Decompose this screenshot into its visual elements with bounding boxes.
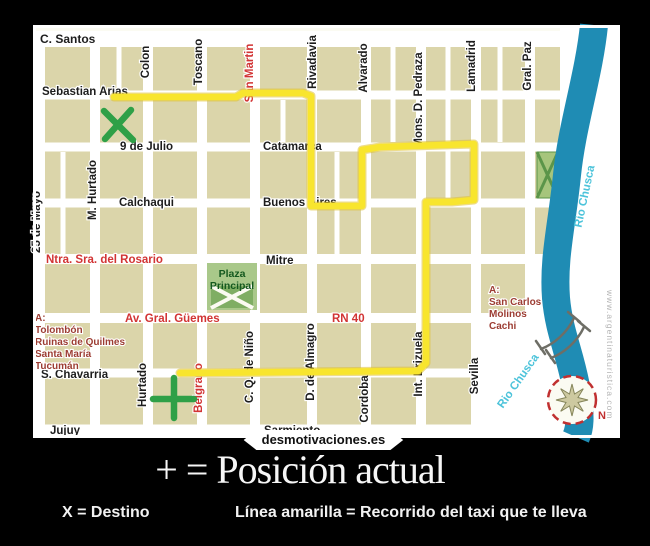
street-label: Gral. Paz — [522, 41, 534, 90]
street-label: Sevilla — [469, 357, 481, 394]
destination-list-item: San Carlos — [489, 297, 542, 308]
street-label: Ntra. Sra. del Rosario — [46, 254, 163, 266]
street-horizontal — [35, 313, 560, 323]
street-label: Cordoba — [359, 375, 371, 423]
caption-title: + = Posición actual — [0, 446, 600, 493]
street-label: RN 40 — [332, 313, 365, 325]
caption-legend: X = Destino Línea amarilla = Recorrido d… — [0, 504, 650, 528]
street-label: Av. Gral. Güemes — [125, 313, 220, 325]
destination-list-item: Ruinas de Quilmes — [35, 337, 125, 348]
street-alley — [61, 152, 66, 258]
side-watermark: www.argentinaturistica.com — [605, 289, 615, 419]
plaza-label: Principal — [210, 280, 254, 292]
destination-list-item: A: — [35, 313, 46, 324]
legend-route: Línea amarilla = Recorrido del taxi que … — [235, 504, 587, 522]
demotivational-poster: PlazaPrincipalC. SantosSebastian Arias9 … — [0, 0, 650, 546]
street-alley — [391, 46, 396, 142]
site-watermark-tab[interactable]: desmotivaciones.es — [244, 430, 404, 450]
destination-list-item: Tolombón — [35, 325, 83, 336]
street-label: C. Q. de Niño — [244, 331, 256, 403]
compass-star — [556, 384, 588, 416]
street-label: Calchaqui — [119, 197, 174, 209]
destination-list-item: Tucumán — [35, 361, 79, 372]
destination-list-item: Cachi — [489, 321, 516, 332]
street-label: C. Santos — [40, 32, 96, 46]
compass-north: N — [598, 410, 606, 422]
street-label: Rivadavia — [307, 35, 319, 89]
destination-list-item: Molinos — [489, 309, 527, 320]
street-label: Toscano — [193, 39, 205, 85]
street-horizontal — [35, 31, 560, 47]
street-label: Mitre — [266, 255, 293, 267]
street-label: D. de Almagro — [305, 323, 317, 401]
street-alley — [281, 100, 286, 142]
street-label: Hurtado — [137, 363, 149, 407]
street-label: M. Hurtado — [87, 160, 99, 220]
street-label: Alvarado — [358, 43, 370, 92]
plaza-label: Plaza — [219, 268, 246, 280]
destination-list-item: A: — [489, 285, 500, 296]
street-label: Colon — [140, 46, 152, 79]
street-label: 25 de Mayo — [31, 191, 43, 253]
street-alley — [117, 46, 122, 90]
destination-list-item: Santa María — [35, 349, 92, 360]
street-label: Mons. D. Pedraza — [413, 52, 425, 148]
street-label: 9 de Julio — [120, 141, 173, 153]
street-alley — [446, 46, 451, 198]
street-label: Lamadrid — [466, 40, 478, 92]
street-alley — [498, 46, 503, 142]
legend-destination: X = Destino — [62, 504, 150, 522]
